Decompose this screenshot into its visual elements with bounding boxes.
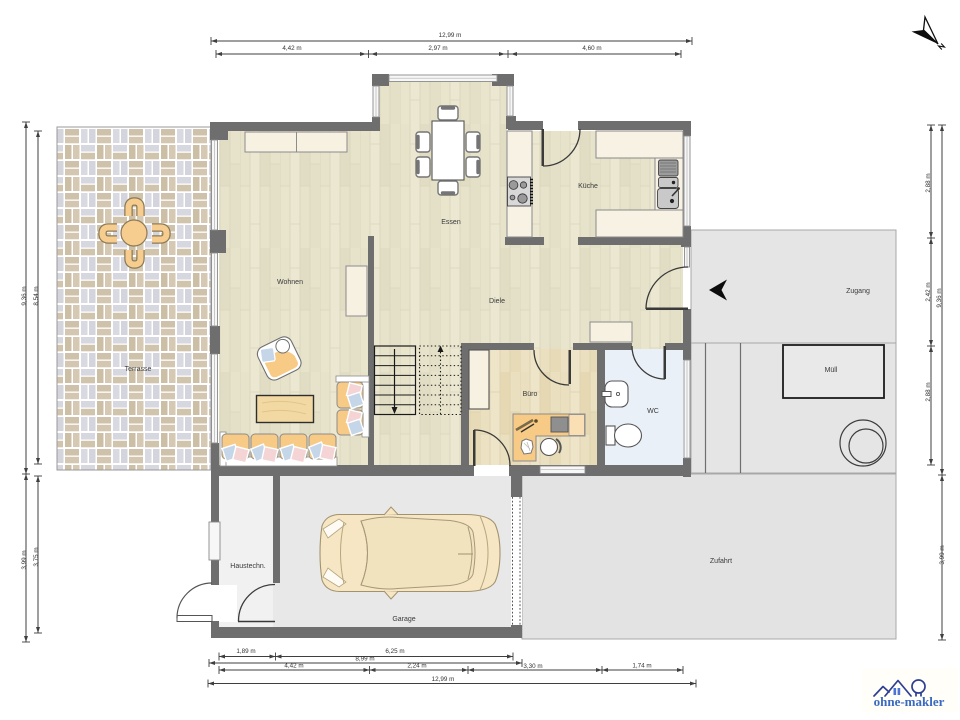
svg-text:Müll: Müll	[825, 367, 838, 374]
svg-text:12,99 m: 12,99 m	[439, 32, 462, 39]
svg-text:1,89 m: 1,89 m	[236, 648, 255, 655]
svg-text:Küche: Küche	[578, 183, 598, 190]
svg-text:Diele: Diele	[489, 298, 505, 305]
svg-text:12,99 m: 12,99 m	[432, 676, 455, 683]
svg-text:3,99 m: 3,99 m	[939, 545, 946, 564]
svg-text:3,75 m: 3,75 m	[33, 547, 40, 566]
svg-text:Büro: Büro	[523, 391, 538, 398]
svg-text:2,88 m: 2,88 m	[925, 382, 932, 401]
svg-text:2,88 m: 2,88 m	[925, 173, 932, 192]
svg-text:1,74 m: 1,74 m	[632, 663, 651, 670]
svg-text:2,97 m: 2,97 m	[428, 45, 447, 52]
svg-text:Haustechn.: Haustechn.	[230, 563, 265, 570]
svg-text:2,24 m: 2,24 m	[407, 663, 426, 670]
svg-text:3,99 m: 3,99 m	[21, 550, 28, 569]
svg-text:6,25 m: 6,25 m	[385, 648, 404, 655]
svg-text:8,99 m: 8,99 m	[355, 656, 374, 663]
svg-text:ohne-makler: ohne-makler	[874, 694, 945, 709]
svg-text:Terrasse: Terrasse	[125, 366, 152, 373]
svg-text:2,42 m: 2,42 m	[925, 282, 932, 301]
svg-text:4,60 m: 4,60 m	[582, 45, 601, 52]
svg-text:Essen: Essen	[441, 219, 461, 226]
svg-text:4,42 m: 4,42 m	[284, 663, 303, 670]
svg-text:8,54 m: 8,54 m	[33, 286, 40, 305]
svg-text:3,30 m: 3,30 m	[523, 663, 542, 670]
svg-text:Zugang: Zugang	[846, 288, 870, 295]
svg-text:4,42 m: 4,42 m	[282, 45, 301, 52]
svg-text:Garage: Garage	[392, 616, 415, 623]
svg-text:Wohnen: Wohnen	[277, 279, 303, 286]
svg-text:9,36 m: 9,36 m	[936, 288, 943, 307]
svg-text:9,36 m: 9,36 m	[21, 286, 28, 305]
svg-text:WC: WC	[647, 408, 659, 415]
svg-text:Zufahrt: Zufahrt	[710, 558, 732, 565]
